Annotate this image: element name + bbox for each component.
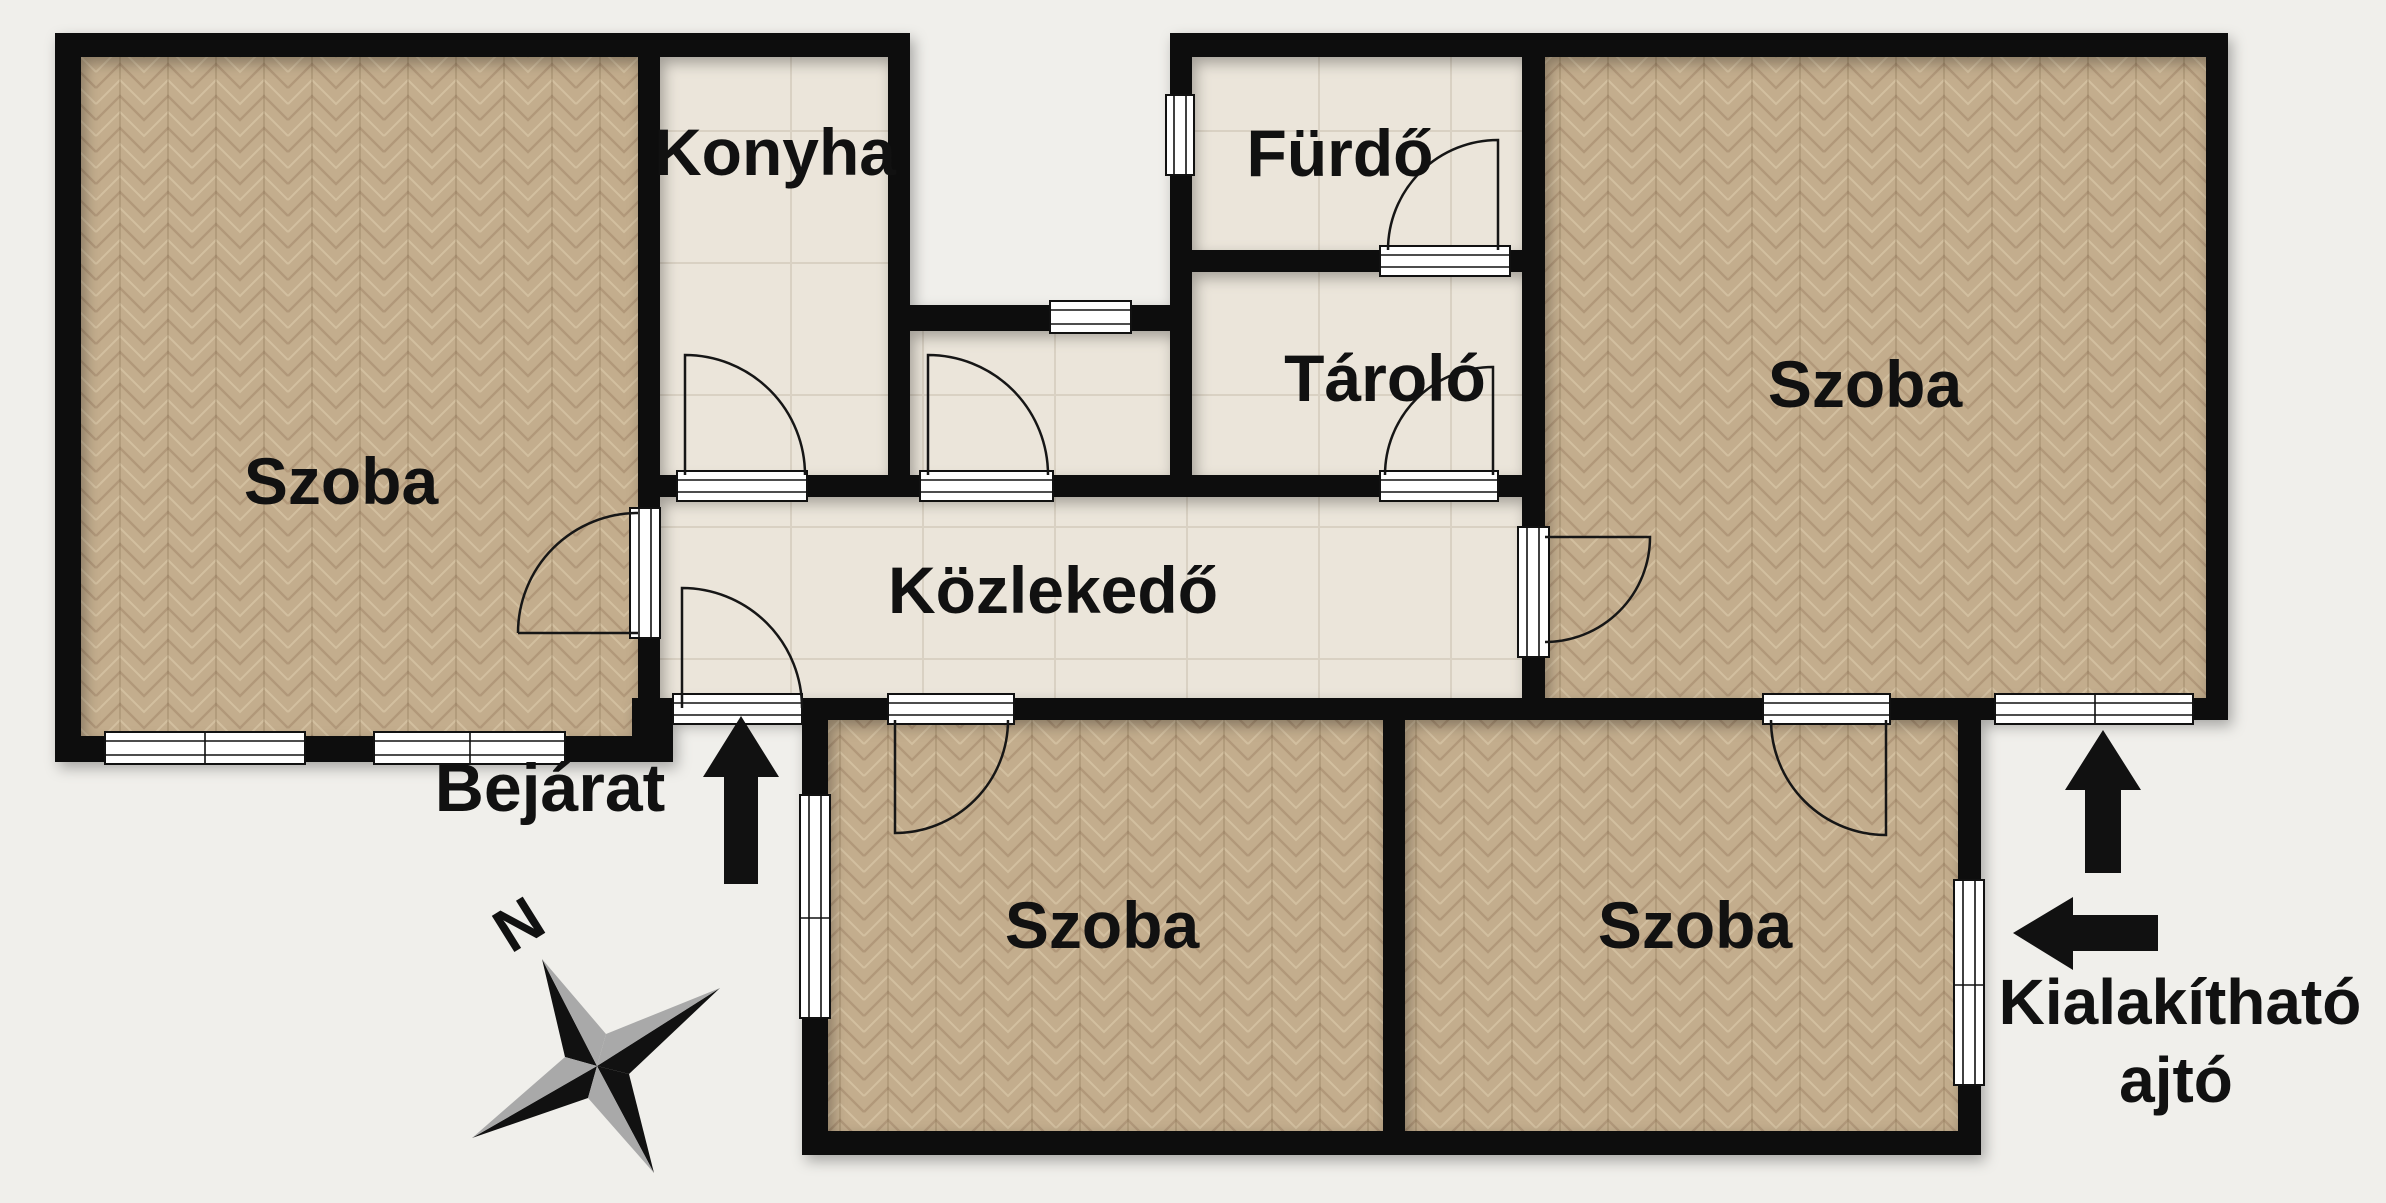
convertible-door-label-line1: Kialakítható [1999,966,2362,1038]
wall-top-right-top [1170,33,2228,57]
wall-bottom-rooms-divider [1383,720,1405,1131]
floorplan-canvas: N Szoba Konyha Fürdő Tároló Közlekedő Sz… [0,0,2386,1203]
entrance-label: Bejárat [435,750,666,826]
entrance-arrow-icon [703,716,779,884]
compass-rose-icon: N [472,884,720,1173]
door-vestibule-sill [920,471,1053,501]
window-szoba-bl-left [800,795,830,1018]
door-konyha-sill [677,471,807,501]
room-label-szoba-top-right: Szoba [1768,347,1964,421]
door-szoba-tr-sill [1518,527,1549,657]
room-label-szoba-bottom-left: Szoba [1005,888,1201,962]
compass-north-label: N [482,884,557,966]
wall-bottom-exterior [802,1131,1981,1155]
wall-top-left-top [55,33,910,57]
door-tarolo-sill [1380,471,1498,501]
wall-left-exterior [55,33,81,762]
wall-right-exterior [2206,33,2228,720]
door-szoba-tl-sill [630,508,660,638]
window-furdo-left [1166,95,1194,175]
window-szoba-tl-1 [105,732,305,764]
room-label-szoba-top-left: Szoba [244,444,440,518]
room-label-kozlekedo: Közlekedő [888,553,1218,627]
room-label-tarolo: Tároló [1284,341,1486,415]
room-vestibule-floor [910,331,1170,475]
room-label-szoba-bottom-right: Szoba [1598,888,1794,962]
wall-konyha-right [888,33,910,475]
wall-corridor-bottom [638,698,2228,720]
door-szoba-bl-sill [888,694,1014,724]
convertible-door-left-arrow-icon [2013,897,2158,970]
door-szoba-br-sill [1763,694,1890,724]
door-furdo-sill [1380,246,1510,276]
window-vestibule-top [1050,301,1131,333]
convertible-door-up-arrow-icon [2065,730,2141,873]
convertible-door-label-line2: ajtó [2119,1044,2233,1116]
room-label-konyha: Konyha [654,115,897,189]
window-szoba-br-right [1954,880,1984,1085]
window-szoba-tr-bottom [1995,694,2193,724]
room-label-furdo: Fürdő [1247,116,1434,190]
door-entrance-sill [673,694,802,724]
